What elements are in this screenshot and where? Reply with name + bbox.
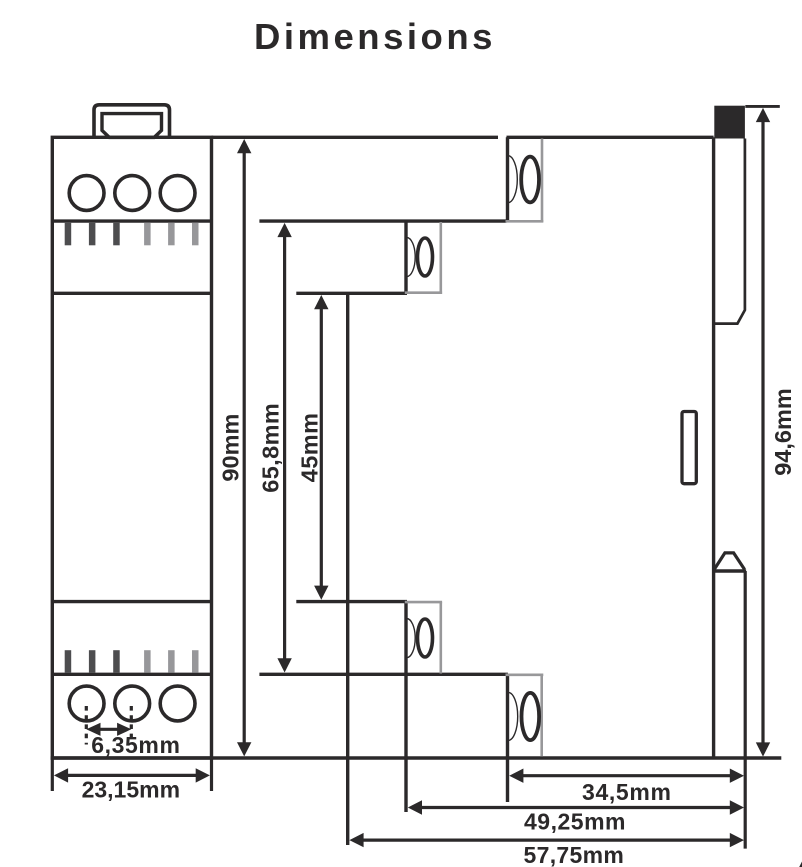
svg-text:34,5mm: 34,5mm <box>582 779 672 805</box>
svg-text:65,8mm: 65,8mm <box>257 403 283 493</box>
svg-text:90mm: 90mm <box>218 414 244 482</box>
svg-text:23,15mm: 23,15mm <box>82 777 180 803</box>
svg-text:94,6mm: 94,6mm <box>770 388 796 476</box>
svg-text:Dimensions: Dimensions <box>254 16 496 57</box>
svg-text:45mm: 45mm <box>297 412 323 482</box>
svg-text:49,25mm: 49,25mm <box>524 809 626 835</box>
svg-text:6,35mm: 6,35mm <box>91 732 180 758</box>
svg-text:57,75mm: 57,75mm <box>524 842 625 867</box>
